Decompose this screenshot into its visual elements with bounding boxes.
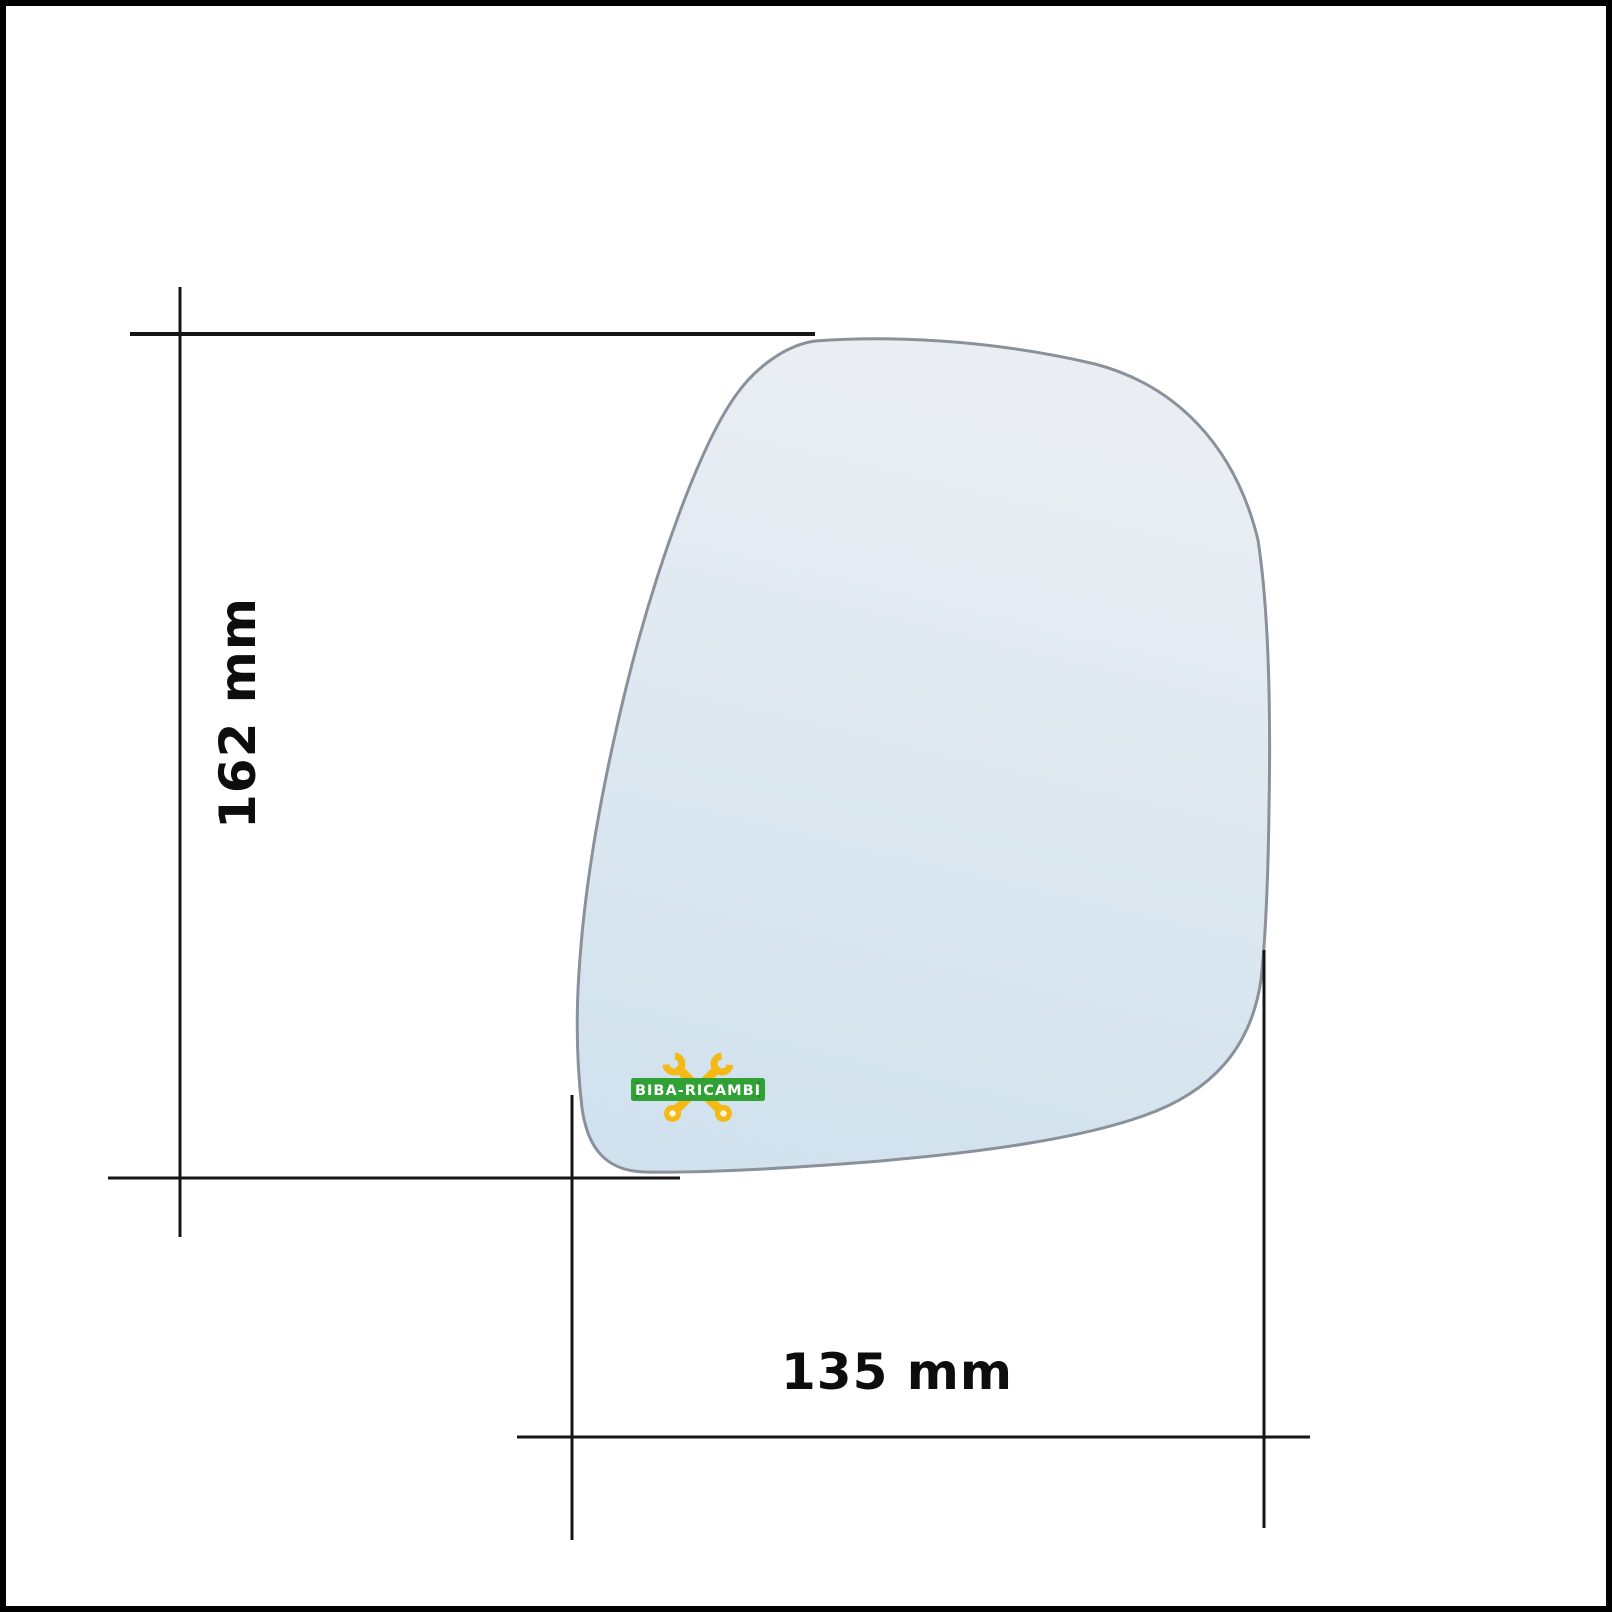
height-dimension-label: 162 mm (208, 563, 268, 863)
product-diagram-canvas: BIBA-RICAMBI 162 mm 135 mm (0, 0, 1612, 1612)
brand-banner-text: BIBA-RICAMBI (635, 1083, 761, 1099)
brand-banner: BIBA-RICAMBI (631, 1078, 765, 1101)
width-dimension-label: 135 mm (747, 1342, 1047, 1402)
mirror-glass-shape (577, 339, 1269, 1172)
